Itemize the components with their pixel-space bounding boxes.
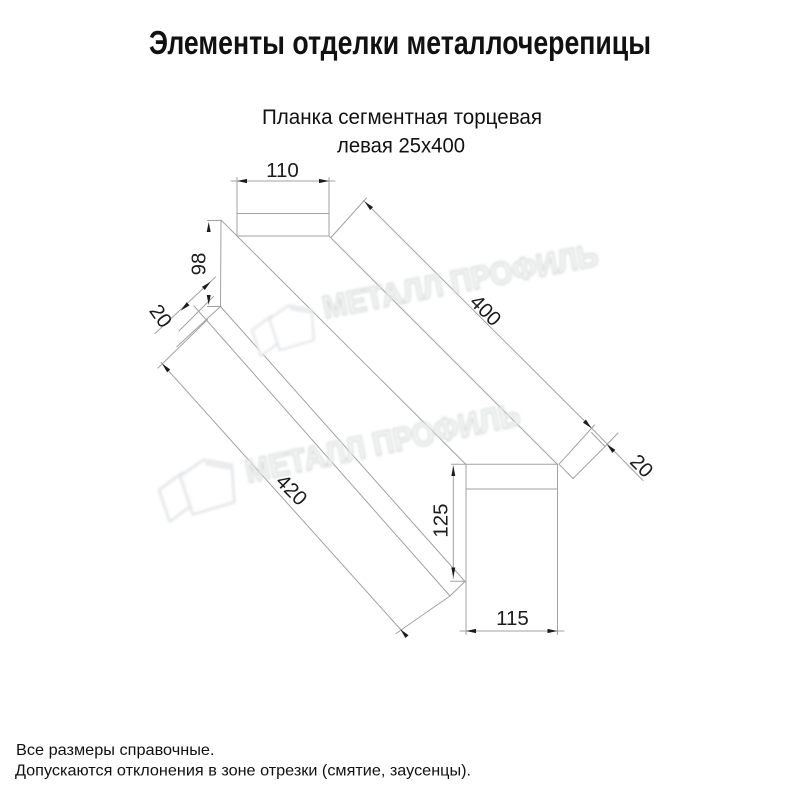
svg-text:125: 125 [430, 503, 453, 537]
svg-text:левая 25х400: левая 25х400 [337, 135, 465, 158]
svg-text:Допускаются отклонения в зоне: Допускаются отклонения в зоне отрезки (с… [15, 763, 471, 780]
svg-text:98: 98 [188, 253, 211, 276]
svg-text:Все размеры справочные.: Все размеры справочные. [16, 742, 215, 759]
svg-text:110: 110 [266, 159, 299, 182]
svg-text:115: 115 [496, 607, 529, 630]
svg-text:Планка сегментная торцевая: Планка сегментная торцевая [262, 106, 542, 129]
svg-text:Элементы отделки металлочерепи: Элементы отделки металлочерепицы [149, 24, 651, 61]
